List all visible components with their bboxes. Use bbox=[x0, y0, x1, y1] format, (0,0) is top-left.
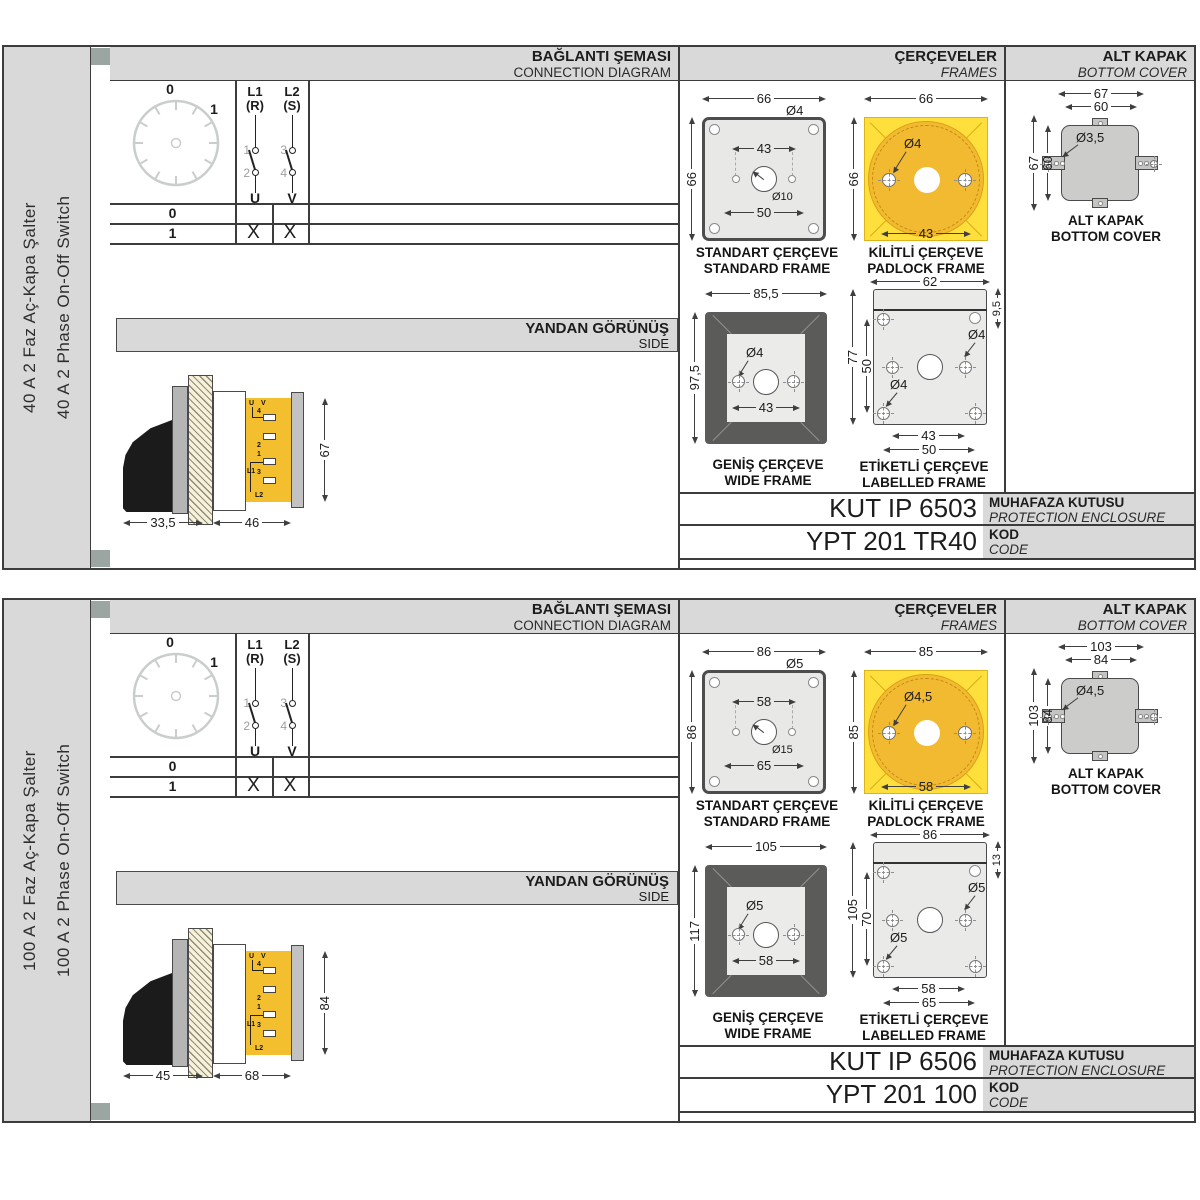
dim-value: 97,5 bbox=[687, 362, 702, 393]
dim-value: 43 bbox=[916, 227, 936, 240]
terminal-lug bbox=[263, 986, 276, 993]
enclosure-label: MUHAFAZA KUTUSU PROTECTION ENCLOSURE bbox=[983, 1047, 1194, 1077]
caption-en: STANDARD FRAME bbox=[688, 261, 846, 277]
divider-frames bbox=[678, 47, 680, 568]
binding-notch-top bbox=[91, 601, 110, 618]
dim-value: 66 bbox=[846, 169, 861, 189]
labelled-frame-drawing: 86 13 105 70 Ø5 Ø5 58 65 ETİKETLİ ÇERÇEV… bbox=[842, 826, 1006, 1048]
side-view-header: YANDAN GÖRÜNÜŞ SIDE bbox=[116, 871, 678, 905]
dim-value: 84 bbox=[317, 993, 332, 1013]
dim-frame-width: 85 bbox=[864, 645, 988, 658]
dim-frame-width: 66 bbox=[864, 92, 988, 105]
mount-hole bbox=[877, 313, 890, 326]
hole-label-a: Ø4 bbox=[890, 377, 907, 392]
dim-value: 46 bbox=[242, 516, 262, 529]
cover-screw bbox=[1150, 713, 1158, 721]
corner-hole bbox=[709, 124, 720, 135]
labelled-frame-caption: ETİKETLİ ÇERÇEVE LABELLED FRAME bbox=[842, 459, 1006, 491]
dim-handle-depth: 45 bbox=[123, 1069, 203, 1082]
dim-value: 77 bbox=[845, 347, 860, 367]
terminal-label-l2: L2 bbox=[255, 1045, 263, 1052]
caption-en: STANDARD FRAME bbox=[688, 814, 846, 830]
terminal-block: U V 4 2 1 3 L1 L2 bbox=[246, 951, 291, 1055]
dim-value: 105 bbox=[845, 896, 860, 924]
switch-handle-side bbox=[123, 420, 172, 512]
connection-diagram-header: BAĞLANTI ŞEMASI CONNECTION DIAGRAM bbox=[110, 600, 678, 634]
cover-hole-label: Ø3,5 bbox=[1076, 130, 1104, 145]
dim-value: 45 bbox=[153, 1069, 173, 1082]
mount-hole bbox=[886, 361, 899, 374]
dim-value: 13 bbox=[990, 851, 1005, 869]
hole-label: Ø4 bbox=[746, 345, 763, 360]
dim-value: 68 bbox=[242, 1069, 262, 1082]
terminal-lug bbox=[263, 967, 276, 974]
plain-hole bbox=[969, 312, 981, 324]
mounting-panel-hatch bbox=[188, 375, 213, 525]
code-label-en: CODE bbox=[989, 542, 1194, 557]
terminal-node bbox=[252, 722, 259, 729]
frames-header: ÇERÇEVELER FRAMES bbox=[678, 47, 1004, 81]
table-line-bottom bbox=[110, 243, 678, 245]
wire bbox=[255, 668, 257, 700]
switch-handle-side bbox=[123, 973, 172, 1065]
switch-front-body bbox=[213, 391, 246, 511]
dim-value: 58 bbox=[754, 695, 774, 708]
dim-frame-height: 85 bbox=[846, 670, 861, 794]
table-row-0-u bbox=[235, 203, 272, 223]
table-row-1-position: 1 bbox=[110, 776, 235, 796]
table-row-1-u: X bbox=[235, 776, 272, 796]
terminal-wire bbox=[252, 960, 253, 970]
dim-inner-height: 84 bbox=[1040, 678, 1055, 754]
contact-line-label: L2 bbox=[275, 85, 309, 99]
center-hole-label: Ø15 bbox=[772, 744, 793, 756]
bottom-cover-header-en: BOTTOM COVER bbox=[1004, 65, 1187, 80]
center-hole-label: Ø10 bbox=[772, 191, 793, 203]
bottom-cover-caption: ALT KAPAK BOTTOM COVER bbox=[1020, 213, 1192, 245]
terminal-wire bbox=[252, 970, 263, 971]
dim-outer-height: 67 bbox=[1026, 115, 1041, 211]
side-view-header: YANDAN GÖRÜNÜŞ SIDE bbox=[116, 318, 678, 352]
terminal-label-l2: L2 bbox=[255, 492, 263, 499]
frames-header-en: FRAMES bbox=[678, 618, 997, 633]
frames-header-en: FRAMES bbox=[678, 65, 997, 80]
side-header-tr: YANDAN GÖRÜNÜŞ bbox=[117, 874, 669, 890]
enclosure-value: KUT IP 6503 bbox=[678, 494, 983, 524]
cover-tab-bottom bbox=[1092, 751, 1108, 761]
label-strip-line bbox=[873, 309, 987, 311]
corner-hole bbox=[808, 223, 819, 234]
bottom-cover-caption: ALT KAPAK BOTTOM COVER bbox=[1020, 766, 1192, 798]
dim-value: 85 bbox=[916, 645, 936, 658]
hole-label-b: Ø5 bbox=[968, 880, 985, 895]
terminal-lug bbox=[263, 1030, 276, 1037]
enclosure-value: KUT IP 6506 bbox=[678, 1047, 983, 1077]
extension-line bbox=[792, 152, 793, 176]
table-line-bottom bbox=[110, 796, 678, 798]
code-table-line bbox=[678, 1111, 1194, 1113]
hole-label-a: Ø5 bbox=[890, 930, 907, 945]
terminal-wire bbox=[250, 462, 263, 463]
caption-tr: KİLİTLİ ÇERÇEVE bbox=[848, 798, 1004, 814]
corner-hole bbox=[709, 776, 720, 787]
table-row-0-v bbox=[272, 756, 308, 776]
cover-hole-label: Ø4,5 bbox=[1076, 683, 1104, 698]
bottom-cover-header-tr: ALT KAPAK bbox=[1004, 49, 1187, 65]
caption-tr: GENİŞ ÇERÇEVE bbox=[690, 1010, 846, 1026]
catalog-page: { "products": [ { "side_label_tr": "40 A… bbox=[0, 0, 1200, 1200]
side-header-tr: YANDAN GÖRÜNÜŞ bbox=[117, 321, 669, 337]
side-header-en: SIDE bbox=[117, 337, 669, 351]
handle-base-plate bbox=[172, 939, 188, 1067]
extension-line bbox=[735, 705, 736, 729]
bottom-cover-header-en: BOTTOM COVER bbox=[1004, 618, 1187, 633]
dim-strip-height: 13 bbox=[990, 841, 1005, 867]
dim-value: 84 bbox=[1040, 706, 1055, 726]
center-hole bbox=[914, 720, 940, 746]
caption-tr: ALT KAPAK bbox=[1020, 766, 1192, 782]
dim-frame-width: 86 bbox=[702, 645, 826, 658]
terminal-node bbox=[289, 700, 296, 707]
dim-frame-height: 66 bbox=[684, 117, 699, 241]
terminal-wire bbox=[252, 407, 253, 417]
dim-vertical-spacing: 70 bbox=[859, 872, 874, 966]
terminal-label-u: U bbox=[249, 953, 254, 960]
center-hole bbox=[917, 907, 943, 933]
dim-value: 84 bbox=[1091, 653, 1111, 666]
enclosure-label-tr: MUHAFAZA KUTUSU bbox=[989, 1048, 1194, 1063]
mount-hole bbox=[732, 928, 745, 941]
table-row-1-v: X bbox=[272, 776, 308, 796]
table-row-0-position: 0 bbox=[110, 756, 235, 776]
wire bbox=[292, 115, 294, 147]
dim-value: 66 bbox=[684, 169, 699, 189]
code-value: YPT 201 100 bbox=[678, 1079, 983, 1111]
dim-frame-height: 97,5 bbox=[687, 312, 702, 444]
terminal-node bbox=[252, 169, 259, 176]
dim-value: 67 bbox=[317, 440, 332, 460]
dim-frame-height: 117 bbox=[687, 865, 702, 997]
connection-header-en: CONNECTION DIAGRAM bbox=[110, 618, 671, 633]
center-hole bbox=[753, 369, 779, 395]
dim-value: 85,5 bbox=[750, 287, 781, 300]
dim-bottom-spacing: 65 bbox=[883, 996, 975, 1009]
mount-hole bbox=[877, 407, 890, 420]
product-sidebar: 100 A 2 Faz Aç-Kapa Şalter 100 A 2 Phase… bbox=[4, 600, 91, 1121]
enclosure-label-en: PROTECTION ENCLOSURE bbox=[989, 510, 1194, 525]
dim-value: 43 bbox=[918, 429, 938, 442]
cover-tab-right bbox=[1135, 156, 1158, 170]
dim-frame-width: 105 bbox=[705, 840, 827, 853]
mount-hole bbox=[886, 914, 899, 927]
mount-hole bbox=[788, 175, 796, 183]
side-header-en: SIDE bbox=[117, 890, 669, 904]
contact-line-label: L1 bbox=[238, 638, 272, 652]
mount-hole bbox=[732, 728, 740, 736]
contact-phase-label: (R) bbox=[238, 99, 272, 113]
extension-line bbox=[792, 705, 793, 729]
center-hole bbox=[753, 922, 779, 948]
frames-header-tr: ÇERÇEVELER bbox=[678, 49, 997, 65]
dim-value: 66 bbox=[916, 92, 936, 105]
extension-line bbox=[735, 152, 736, 176]
product-sidebar: 40 A 2 Faz Aç-Kapa Şalter 40 A 2 Phase O… bbox=[4, 47, 91, 568]
dim-value: 60 bbox=[1091, 100, 1111, 113]
code-label: KOD CODE bbox=[983, 1079, 1194, 1111]
dim-inner-height: 60 bbox=[1040, 125, 1055, 201]
dim-outer-height: 103 bbox=[1026, 668, 1041, 764]
product-name-turkish: 100 A 2 Faz Aç-Kapa Şalter bbox=[14, 600, 46, 1121]
padlock-hole bbox=[958, 173, 972, 187]
caption-tr: GENİŞ ÇERÇEVE bbox=[690, 457, 846, 473]
terminal-number-bottom: 4 bbox=[275, 719, 287, 733]
dim-value: 65 bbox=[919, 996, 939, 1009]
dim-frame-width: 66 bbox=[702, 92, 826, 105]
standard-frame-caption: STANDART ÇERÇEVE STANDARD FRAME bbox=[688, 798, 846, 830]
caption-tr: STANDART ÇERÇEVE bbox=[688, 245, 846, 261]
dim-frame-height: 105 bbox=[845, 842, 860, 978]
dim-value: 58 bbox=[918, 982, 938, 995]
dim-hole-spacing: 58 bbox=[732, 954, 800, 967]
caption-en: WIDE FRAME bbox=[690, 1026, 846, 1042]
terminal-number-4: 4 bbox=[257, 961, 261, 968]
product-section: 100 A 2 Faz Aç-Kapa Şalter 100 A 2 Phase… bbox=[2, 598, 1196, 1123]
terminal-number-4: 4 bbox=[257, 408, 261, 415]
dim-frame-height: 66 bbox=[846, 117, 861, 241]
table-row-1-v: X bbox=[272, 223, 308, 243]
labelled-frame-caption: ETİKETLİ ÇERÇEVE LABELLED FRAME bbox=[842, 1012, 1006, 1044]
wide-frame-drawing: 105 117 Ø5 58 GENİŞ ÇERÇEVE WIDE FRAME bbox=[690, 838, 846, 1048]
table-row-1-u: X bbox=[235, 223, 272, 243]
product-name-english: 100 A 2 Phase On-Off Switch bbox=[48, 600, 80, 1121]
contact-line-label: L1 bbox=[238, 85, 272, 99]
contact-phase-label: (S) bbox=[275, 99, 309, 113]
corner-hole bbox=[808, 677, 819, 688]
wire bbox=[292, 668, 294, 700]
dim-hole-spacing: 43 bbox=[732, 401, 800, 414]
terminal-block: U V 4 2 1 3 L1 L2 bbox=[246, 398, 291, 502]
rear-plate bbox=[291, 945, 304, 1061]
padlock-frame-drawing: 66 Ø4 43 66 KİLİTLİ ÇERÇEVE PADLOCK FRAM… bbox=[848, 90, 1004, 282]
dim-frame-width: 62 bbox=[870, 275, 990, 288]
dim-value: 103 bbox=[1026, 702, 1041, 730]
mount-hole bbox=[787, 928, 800, 941]
padlock-hole bbox=[958, 726, 972, 740]
standard-frame-drawing: 66 Ø4 66 43 Ø10 50 STANDART ÇERÇEVE STAN… bbox=[688, 90, 846, 282]
caption-tr: KİLİTLİ ÇERÇEVE bbox=[848, 245, 1004, 261]
dim-hole-spacing: 58 bbox=[881, 780, 971, 793]
caption-tr: ETİKETLİ ÇERÇEVE bbox=[842, 459, 1006, 475]
dim-value: 105 bbox=[752, 840, 780, 853]
dim-value: 43 bbox=[756, 401, 776, 414]
dim-value: 58 bbox=[916, 780, 936, 793]
caption-en: LABELLED FRAME bbox=[842, 1028, 1006, 1044]
terminal-node bbox=[252, 700, 259, 707]
bottom-cover-header: ALT KAPAK BOTTOM COVER bbox=[1004, 600, 1194, 634]
caption-tr: ETİKETLİ ÇERÇEVE bbox=[842, 1012, 1006, 1028]
standard-frame-drawing: 86 Ø5 86 58 Ø15 65 STANDART ÇERÇEVE STAN… bbox=[688, 643, 846, 835]
center-hole bbox=[917, 354, 943, 380]
dial-position-1: 1 bbox=[206, 654, 222, 670]
dim-handle-depth: 33,5 bbox=[123, 516, 203, 529]
padlock-hole bbox=[882, 173, 896, 187]
corner-hole bbox=[709, 677, 720, 688]
terminal-number-3: 3 bbox=[257, 1022, 261, 1029]
connection-header-en: CONNECTION DIAGRAM bbox=[110, 65, 671, 80]
connection-header-tr: BAĞLANTI ŞEMASI bbox=[110, 49, 671, 65]
dim-body-height: 67 bbox=[317, 398, 332, 502]
dim-value: 43 bbox=[754, 142, 774, 155]
terminal-number-bottom: 2 bbox=[238, 719, 250, 733]
terminal-node bbox=[289, 147, 296, 154]
caption-en: WIDE FRAME bbox=[690, 473, 846, 489]
contact-column-l2: L2 (S) 3 4 V bbox=[275, 85, 309, 205]
terminal-lug bbox=[263, 1011, 276, 1018]
dim-bottom-spacing: 50 bbox=[724, 206, 804, 219]
corner-hole bbox=[709, 223, 720, 234]
cover-screw bbox=[1150, 160, 1158, 168]
center-hole bbox=[914, 167, 940, 193]
code-label-tr: KOD bbox=[989, 527, 1194, 542]
terminal-number-2: 2 bbox=[257, 442, 261, 449]
dim-value: 86 bbox=[754, 645, 774, 658]
dim-value: 58 bbox=[756, 954, 776, 967]
terminal-label-u: U bbox=[249, 400, 254, 407]
hole-label: Ø4,5 bbox=[904, 689, 932, 704]
frames-header-tr: ÇERÇEVELER bbox=[678, 602, 997, 618]
dim-hole-spacing: 43 bbox=[881, 227, 971, 240]
terminal-node bbox=[252, 147, 259, 154]
dim-hole-spacing: 43 bbox=[892, 429, 965, 442]
dim-value: 86 bbox=[684, 722, 699, 742]
contact-column-l1: L1 (R) 1 2 U bbox=[238, 638, 272, 758]
dim-value: 117 bbox=[687, 918, 702, 945]
mount-hole bbox=[877, 866, 890, 879]
product-name-turkish: 40 A 2 Faz Aç-Kapa Şalter bbox=[14, 47, 46, 568]
dim-frame-width: 85,5 bbox=[705, 287, 827, 300]
wire bbox=[255, 115, 257, 147]
terminal-number-3: 3 bbox=[257, 469, 261, 476]
caption-en: BOTTOM COVER bbox=[1020, 782, 1192, 798]
dim-strip-height: 9,5 bbox=[990, 288, 1005, 314]
dim-value: 65 bbox=[754, 759, 774, 772]
caption-en: LABELLED FRAME bbox=[842, 475, 1006, 491]
contact-line-label: L2 bbox=[275, 638, 309, 652]
terminal-number-bottom: 4 bbox=[275, 166, 287, 180]
caption-tr: STANDART ÇERÇEVE bbox=[688, 798, 846, 814]
binding-notch-bottom bbox=[91, 1103, 110, 1120]
mount-hole bbox=[877, 960, 890, 973]
dim-bottom-spacing: 65 bbox=[724, 759, 804, 772]
dim-hole-spacing: 43 bbox=[732, 142, 796, 155]
terminal-label-v: V bbox=[261, 953, 266, 960]
dim-frame-height: 86 bbox=[684, 670, 699, 794]
plain-hole bbox=[969, 865, 981, 877]
enclosure-label-tr: MUHAFAZA KUTUSU bbox=[989, 495, 1194, 510]
corner-hole bbox=[808, 124, 819, 135]
mount-hole bbox=[969, 407, 982, 420]
mount-hole bbox=[788, 728, 796, 736]
table-row-0-v bbox=[272, 203, 308, 223]
terminal-wire bbox=[252, 417, 263, 418]
terminal-number-1: 1 bbox=[257, 1004, 261, 1011]
hole-label-b: Ø4 bbox=[968, 327, 985, 342]
enclosure-label-en: PROTECTION ENCLOSURE bbox=[989, 1063, 1194, 1078]
corner-hole-label: Ø5 bbox=[786, 656, 803, 671]
dim-hole-spacing: 58 bbox=[732, 695, 796, 708]
terminal-lug bbox=[263, 414, 276, 421]
terminal-lug bbox=[263, 477, 276, 484]
corner-hole bbox=[808, 776, 819, 787]
padlock-frame-drawing: 85 Ø4,5 58 85 KİLİTLİ ÇERÇEVE PADLOCK FR… bbox=[848, 643, 1004, 835]
dim-value: 50 bbox=[859, 356, 874, 376]
terminal-number-2: 2 bbox=[257, 995, 261, 1002]
dim-value: 70 bbox=[859, 909, 874, 929]
code-value: YPT 201 TR40 bbox=[678, 526, 983, 558]
label-strip-line bbox=[873, 862, 987, 864]
connection-diagram-header: BAĞLANTI ŞEMASI CONNECTION DIAGRAM bbox=[110, 47, 678, 81]
dim-inner-width: 60 bbox=[1065, 100, 1137, 113]
terminal-wire bbox=[250, 1015, 251, 1045]
table-row-1-position: 1 bbox=[110, 223, 235, 243]
dim-vertical-spacing: 50 bbox=[859, 319, 874, 413]
padlock-frame-body bbox=[864, 117, 988, 241]
mount-hole bbox=[787, 375, 800, 388]
wide-frame-caption: GENİŞ ÇERÇEVE WIDE FRAME bbox=[690, 457, 846, 489]
mount-hole bbox=[959, 361, 972, 374]
dim-value: 9,5 bbox=[990, 298, 1005, 319]
binding-notch-top bbox=[91, 48, 110, 65]
table-row-0-u bbox=[235, 756, 272, 776]
terminal-lug bbox=[263, 458, 276, 465]
padlock-hole bbox=[882, 726, 896, 740]
switch-front-body bbox=[213, 944, 246, 1064]
dial-position-0: 0 bbox=[160, 634, 180, 650]
hole-label: Ø4 bbox=[904, 136, 921, 151]
hole-label: Ø5 bbox=[746, 898, 763, 913]
bottom-cover-header-tr: ALT KAPAK bbox=[1004, 602, 1187, 618]
terminal-wire bbox=[250, 1015, 263, 1016]
standard-frame-caption: STANDART ÇERÇEVE STANDARD FRAME bbox=[688, 245, 846, 277]
product-section: 40 A 2 Faz Aç-Kapa Şalter 40 A 2 Phase O… bbox=[2, 45, 1196, 570]
contact-column-l2: L2 (S) 3 4 V bbox=[275, 638, 309, 758]
terminal-number-bottom: 2 bbox=[238, 166, 250, 180]
terminal-node bbox=[289, 722, 296, 729]
dial-position-1: 1 bbox=[206, 101, 222, 117]
dim-value: 85 bbox=[846, 722, 861, 742]
frames-header: ÇERÇEVELER FRAMES bbox=[678, 600, 1004, 634]
dim-value: 60 bbox=[1040, 153, 1055, 173]
dial-position-0: 0 bbox=[160, 81, 180, 97]
dim-inner-width: 84 bbox=[1065, 653, 1137, 666]
bottom-cover-header: ALT KAPAK BOTTOM COVER bbox=[1004, 47, 1194, 81]
code-label: KOD CODE bbox=[983, 526, 1194, 558]
cover-tab-bottom bbox=[1092, 198, 1108, 208]
dim-frame-height: 77 bbox=[845, 289, 860, 425]
code-label-tr: KOD bbox=[989, 1080, 1194, 1095]
code-label-en: CODE bbox=[989, 1095, 1194, 1110]
dim-value: 67 bbox=[1026, 153, 1041, 173]
mount-hole bbox=[969, 960, 982, 973]
contact-phase-label: (R) bbox=[238, 652, 272, 666]
dim-value: 50 bbox=[754, 206, 774, 219]
mounting-panel-hatch bbox=[188, 928, 213, 1078]
terminal-number-1: 1 bbox=[257, 451, 261, 458]
wide-frame-caption: GENİŞ ÇERÇEVE WIDE FRAME bbox=[690, 1010, 846, 1042]
terminal-label-l1: L1 bbox=[247, 468, 255, 475]
caption-en: BOTTOM COVER bbox=[1020, 229, 1192, 245]
terminal-label-v: V bbox=[261, 400, 266, 407]
